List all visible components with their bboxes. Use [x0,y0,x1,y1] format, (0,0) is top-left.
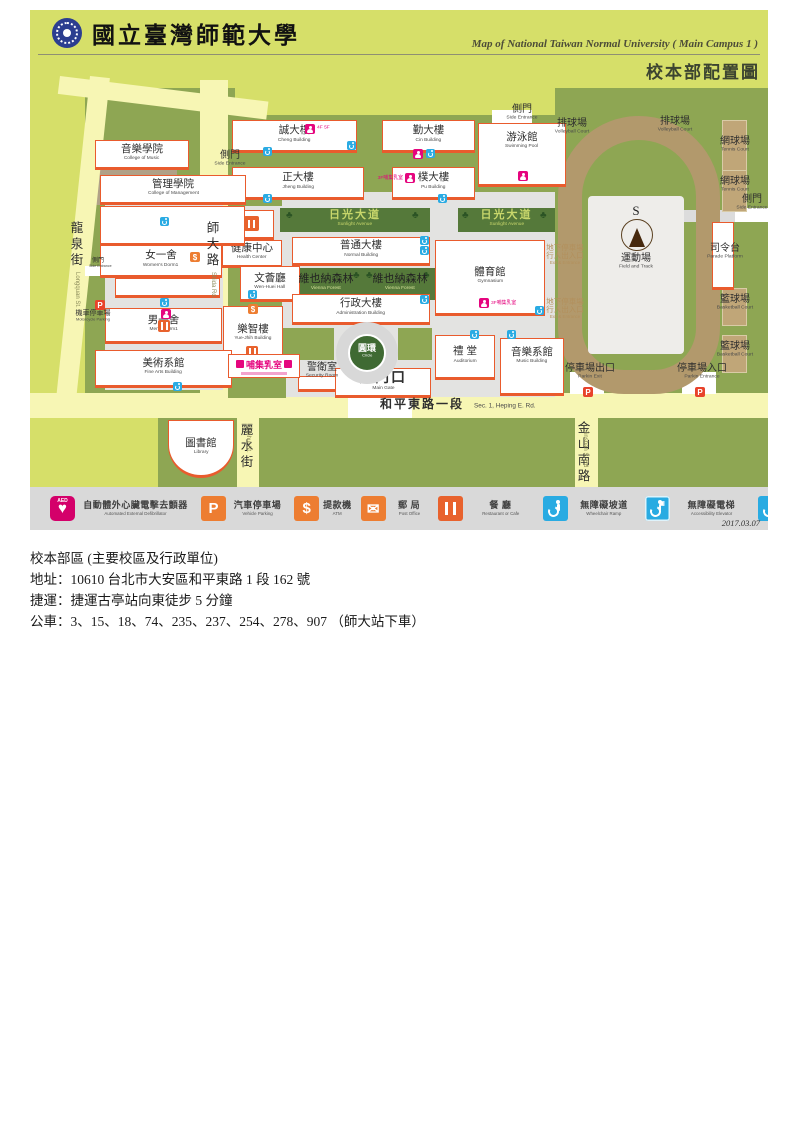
building-auditorium: 禮 堂Auditorium [435,335,495,380]
info-campus-title: 校本部區 (主要校區及行政單位) [30,548,750,569]
building-cheng: 誠大樓Cheng Building [232,120,357,153]
nursing-room-badge: 哺集乳室 [228,354,300,378]
legend-en: Restaurant or Cafe [482,511,519,516]
accessibility-icon [535,306,544,315]
map-title-chinese: 校本部配置圖 [646,58,760,83]
circle-label-en: Circle [362,353,372,358]
green-label-zh: 維也納森林 [373,274,428,285]
green-sunlight-avenue-2: 日光大道Sunlight Avenue♣♣ [458,208,555,232]
accessibility-icon [248,290,257,299]
wc-ramp-icon [543,496,568,521]
building-label-en: Main Gate [372,385,394,390]
campus-map: 日光大道Sunlight Avenue♣♣日光大道Sunlight Avenue… [30,10,768,530]
street-name-longquan: 龍泉街 [70,220,84,268]
building-label-en: Administration Building [337,310,386,315]
south-block-2 [598,418,768,487]
green-sunlight-avenue-1: 日光大道Sunlight Avenue♣♣ [280,208,430,232]
icon-note: 4F 5F [317,125,330,130]
building-administration: 行政大樓Administration Building [292,294,430,325]
legend-zh: 郵 局 [398,498,420,511]
accessibility-icon [160,298,169,307]
building-label-zh: 音樂學院 [121,144,163,155]
entrance-stub [492,110,532,123]
atm-icon: $ [248,304,258,314]
legend-item-food: 餐 廳Restaurant or Cafe [438,496,535,521]
nursing-room-icon [518,171,528,181]
building-label-en: College of Music [124,155,159,160]
street-name-en-jinshan: Jinshan S. Rd [582,430,588,467]
legend-zh: 提款機 [323,498,352,511]
legend-item-wc-ramp: 無障礙坡道Wheelchair Ramp [543,496,636,521]
accessibility-icon [470,330,479,339]
green-label-en: Sunlight Avenue [338,221,373,226]
building-label-en: Normal Building [344,252,378,257]
legend-item-aed: AED♥自動體外心臟電擊去顫器Automated External Defibr… [50,496,192,521]
food-icon [438,496,463,521]
accessibility-icon [420,246,429,255]
green-label-zh: 日光大道 [481,210,533,221]
compass-icon [621,219,653,251]
icon-note: 3F哺集乳室 [368,174,403,181]
street-name-shida: 師大路 [206,220,220,268]
info-address: 地址：10610 台北市大安區和平東路 1 段 162 號 [30,569,750,590]
post-icon: ✉ [361,496,386,521]
building-fine-arts: 美術系館Fine Arts Building [95,350,232,388]
legend-zh: 自動體外心臟電擊去顫器 [83,498,188,511]
building-label-en: Library [194,449,209,454]
restaurant-icon [244,216,259,231]
green-label-en: Vienna Forest [385,285,415,290]
nursing-icon [284,360,292,368]
ntnu-logo-icon [52,18,82,48]
building-label-zh: 正大樓 [282,172,314,183]
building-label-zh: 禮 堂 [453,346,477,357]
building-label-zh: 體育館 [474,267,506,278]
accessibility-icon [263,194,272,203]
park-icon: P [201,496,226,521]
building-label-en: Cin Building [416,137,442,142]
building-label-en: Music Building [517,358,548,363]
accessibility-icon [420,236,429,245]
map-date: 2017.03.07 [722,518,760,528]
building-label-zh: 勤大樓 [413,125,445,136]
building-label-zh: 圖書館 [185,438,217,449]
sports-court [722,170,747,212]
building-college-of-music: 音樂學院College of Music [95,140,189,170]
atm-icon: $ [294,496,319,521]
tree-icon: ♣ [412,211,419,221]
campus-info: 校本部區 (主要校區及行政單位) 地址：10610 台北市大安區和平東路 1 段… [30,548,750,632]
building-pu: 樸大樓Pu Building [392,167,475,200]
building-label-en: Wen-Huei Hall [255,284,286,289]
page: 日光大道Sunlight Avenue♣♣日光大道Sunlight Avenue… [0,0,800,1130]
building-annex-b [115,278,220,298]
green-label-zh: 維也納森林 [299,274,354,285]
green-label-en: Vienna Forest [311,285,341,290]
legend-zh: 無障礙坡道 [580,498,628,511]
lawn-patch [398,328,432,360]
sports-court [722,120,747,177]
accessibility-icon [420,295,429,304]
building-label-zh: 普通大樓 [340,240,382,251]
legend-bar: AED♥自動體外心臟電擊去顫器Automated External Defibr… [30,487,768,530]
building-normal-building: 普通大樓Normal Building [292,237,430,266]
street-name-en-longquan: Longquan St. [74,272,80,308]
building-label-en: Yue-Jhih Building [234,335,271,340]
building-label-en: Health Center [237,254,267,259]
circle: 圓環Circle [348,334,386,372]
building-annex-a [100,206,245,246]
green-label-en: Sunlight Avenue [489,221,524,226]
building-label-en: Gymnasium [477,278,503,283]
building-security-hut [298,376,336,392]
building-label-zh: 行政大樓 [340,298,382,309]
header-divider [38,54,760,55]
info-bus: 公車：3、15、18、74、235、237、254、278、907 （師大站下車… [30,611,750,632]
building-label-zh: 美術系館 [143,358,185,369]
parking-icon: P [583,387,593,397]
tree-icon: ♣ [540,211,547,221]
accessibility-icon [173,382,182,391]
tree-icon: ♣ [462,211,469,221]
wc-elev-icon: ▣ [645,496,670,521]
building-label-zh: 游泳館 [506,132,538,143]
map-title-english: Map of National Taiwan Normal University… [472,38,758,50]
building-label-zh: 女一舍 [145,250,177,261]
icon-note: 3F哺集乳室 [491,299,516,306]
accessibility-icon [507,330,516,339]
legend-zh: 餐 廳 [489,498,511,511]
building-label-en: Cheng Building [278,137,311,142]
legend-item-atm: $提款機ATM [294,496,352,521]
tree-icon: ♣ [353,271,360,281]
building-label-zh: 音樂系館 [511,347,553,358]
street-name-en-lishui: Lishui St. [245,428,251,453]
legend-en: Post Office [398,511,419,516]
nursing-room-icon [161,309,171,319]
building-label-zh: 文薈廳 [254,273,286,284]
tree-icon: ♣ [286,211,293,221]
building-music-building: 音樂系館Music Building [500,338,564,396]
building-label-en: Auditorium [454,358,477,363]
building-label-en: Pu Building [421,184,445,189]
legend-en: Vehicle Parking [242,511,272,516]
building-label-en: Jheng Building [282,184,313,189]
nursing-room-icon [479,298,489,308]
sports-court [722,288,747,326]
building-label-zh: 管理學院 [152,179,194,190]
street-name-en-shida: Shida Rd. [210,272,216,298]
nursing-room-icon [413,149,423,159]
building-college-of-management: 管理學院College of Management [100,175,246,205]
building-jheng: 正大樓Jheng Building [232,167,364,200]
accessibility-icon [426,149,435,158]
green-label-zh: 日光大道 [329,210,381,221]
legend-zh: 汽車停車場 [234,498,282,511]
building-label-en: College of Management [148,190,199,195]
nursing-room-icon [405,173,415,183]
nursing-icon [236,360,244,368]
building-label-en: Fine Arts Building [145,369,182,374]
sports-court [722,335,747,373]
building-gymnasium: 體育館Gymnasium [435,240,545,316]
legend-en: ATM [333,511,342,516]
university-name: 國立臺灣師範大學 [92,16,300,50]
accessibility-icon [263,147,272,156]
legend-item-post: ✉郵 局Post Office [361,496,429,521]
info-mrt: 捷運：捷運古亭站向東徒步 5 分鐘 [30,590,750,611]
parking-icon: P [695,387,705,397]
building-label-zh: 樂智樓 [237,324,269,335]
restaurant-icon [158,320,170,332]
parking-icon: P [95,300,105,310]
accessibility-icon [347,141,356,150]
nursing-room-icon [305,124,315,134]
legend-en: Wheelchair Ramp [587,511,622,516]
map-canvas: 日光大道Sunlight Avenue♣♣日光大道Sunlight Avenue… [30,10,768,530]
atm-icon: $ [190,252,200,262]
building-label-en: Women's Dorm1 [143,262,179,267]
accessibility-icon [438,194,447,203]
building-parade-platform [712,222,734,290]
building-label-zh: 樸大樓 [418,172,450,183]
accessibility-icon [160,217,169,226]
compass-s-label: S [621,203,651,219]
building-label-en: Swimming Pool [505,143,538,148]
legend-item-park: P汽車停車場Vehicle Parking [201,496,285,521]
legend-zh: 無障礙電梯 [688,498,736,511]
legend-en: Accessibility Elevator [691,511,732,516]
legend-items: AED♥自動體外心臟電擊去顫器Automated External Defibr… [50,487,768,530]
legend-en: Automated External Defibrillator [104,511,166,516]
building-womens-dorm1: 女一舍Women's Dorm1 [100,245,222,278]
circle-label-zh: 圓環 [358,344,376,353]
south-block-1 [259,418,575,487]
aed-icon: AED♥ [50,496,75,521]
nursing-label: 哺集乳室 [246,358,282,371]
